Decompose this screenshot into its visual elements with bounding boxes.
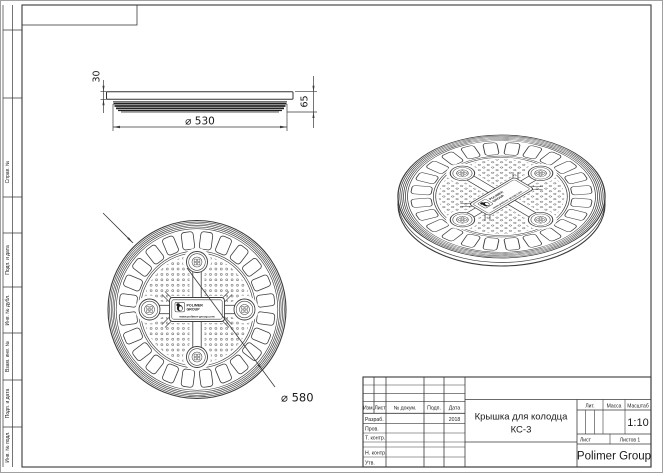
margin-label: Подп. и дата xyxy=(5,389,11,419)
company-name: Polimer Group xyxy=(577,451,651,463)
margin-label: Справ. № xyxy=(5,161,11,184)
row-razrab: Разраб. xyxy=(365,417,384,423)
margin-label: Инв. № дубл. xyxy=(5,295,11,326)
margin-label: Инв. № подл. xyxy=(5,431,11,462)
dim-580-text: ⌀ 580 xyxy=(281,391,314,405)
row-utv: Утв. xyxy=(365,461,375,467)
col-izm: Изм. xyxy=(363,406,374,412)
row-prov: Пров. xyxy=(365,426,379,432)
doc-title-line1: Крышка для колодца xyxy=(475,412,568,423)
margin-label: Подп. и дата xyxy=(5,245,11,275)
sheet-label: Лист xyxy=(580,438,592,444)
col-docnum: № докум. xyxy=(394,406,417,412)
cover-ribs xyxy=(113,102,287,112)
row-nkontr: Н. контр. xyxy=(365,451,386,457)
cover-top-plate xyxy=(107,92,294,100)
col-list: Лист xyxy=(374,406,386,412)
dim-530-text: ⌀ 530 xyxy=(185,116,215,128)
col-data: Дата xyxy=(449,406,461,412)
dim-65-text: 65 xyxy=(300,95,311,107)
drawing-sheet: POLIMER GROUP www.polimer-group.com Спра… xyxy=(0,0,663,473)
sheets-total: Листов 1 xyxy=(620,438,641,444)
margin-label: Взам. инв. № xyxy=(5,341,11,372)
col-podp: Подп. xyxy=(427,406,441,412)
row-tkontr: Т. контр. xyxy=(365,436,385,442)
scale-label: Масштаб xyxy=(627,404,649,410)
mass-label: Масса xyxy=(607,404,622,410)
scale-value: 1:10 xyxy=(627,417,648,429)
dim-30-text: 30 xyxy=(92,70,103,82)
doc-title-line2: КС-3 xyxy=(511,425,532,436)
lit-label: Лит. xyxy=(585,404,594,410)
date-value: 2018 xyxy=(449,417,461,423)
